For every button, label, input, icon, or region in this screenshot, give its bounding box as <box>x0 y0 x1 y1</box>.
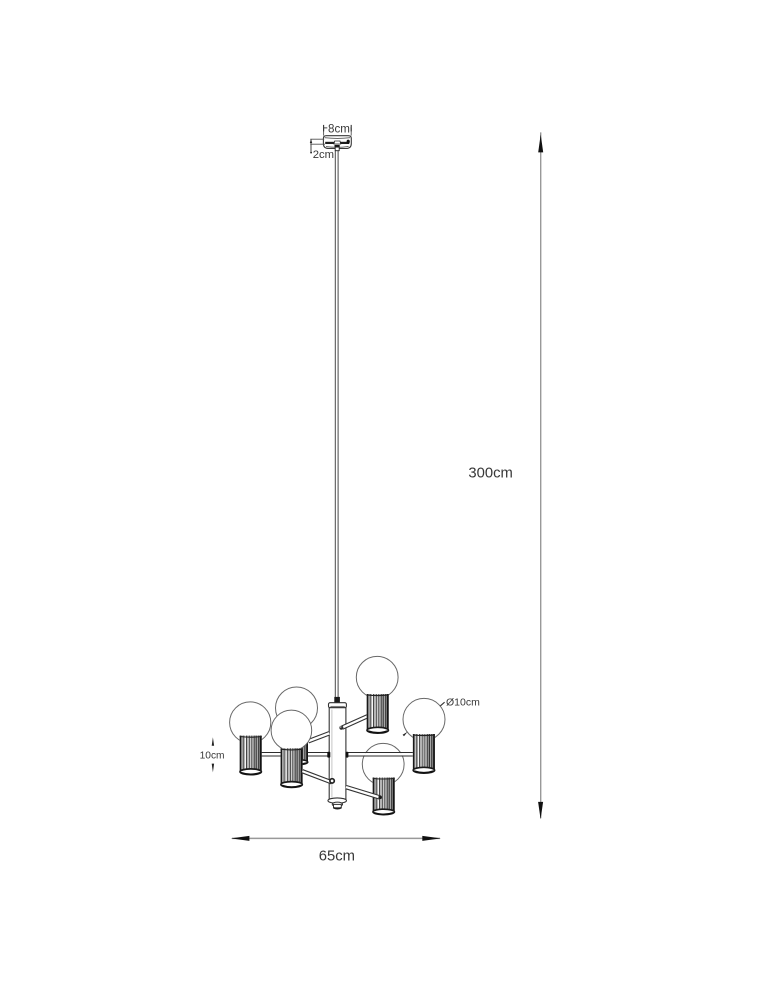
svg-text:300cm: 300cm <box>468 466 512 482</box>
svg-text:2cm: 2cm <box>313 149 334 161</box>
svg-text:8cm: 8cm <box>328 122 350 135</box>
svg-text:Ø10cm: Ø10cm <box>446 697 480 709</box>
svg-text:10cm: 10cm <box>200 750 225 761</box>
svg-text:65cm: 65cm <box>319 848 355 864</box>
